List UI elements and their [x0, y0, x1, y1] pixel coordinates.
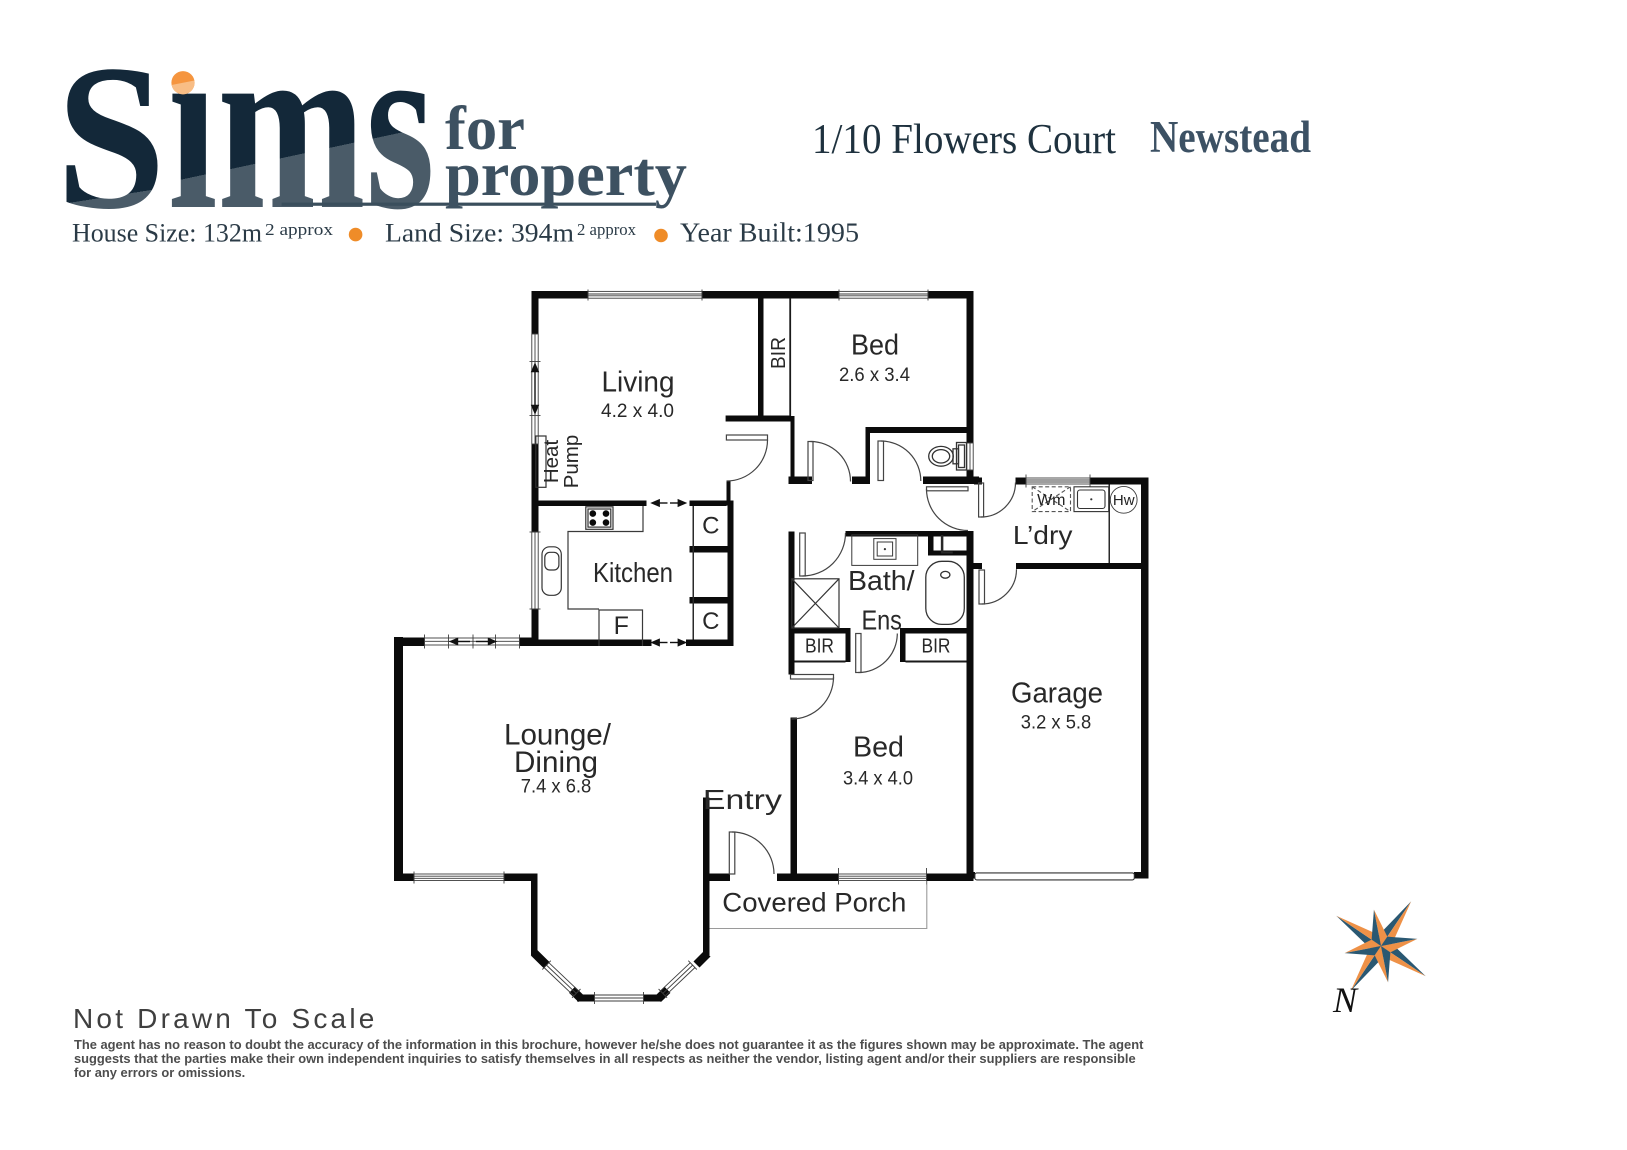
svg-text:7.4 x 6.8: 7.4 x 6.8 [521, 776, 592, 798]
svg-text:Ens: Ens [861, 605, 902, 636]
svg-text:suggests that the parties make: suggests that the parties make their own… [74, 1051, 1136, 1066]
svg-text:HeatPump: HeatPump [540, 435, 583, 489]
svg-text:House Size: 132m: House Size: 132m [72, 218, 262, 248]
svg-text:2 approx: 2 approx [577, 220, 636, 239]
svg-text:4.2 x 4.0: 4.2 x 4.0 [601, 400, 674, 422]
svg-text:Covered Porch: Covered Porch [722, 888, 906, 918]
svg-text:Kitchen: Kitchen [593, 557, 673, 588]
svg-text:BIR: BIR [922, 635, 951, 658]
svg-text:Bath/: Bath/ [848, 565, 915, 596]
svg-text:The agent has no reason to dou: The agent has no reason to doubt the acc… [74, 1037, 1144, 1052]
svg-text:Not Drawn To Scale: Not Drawn To Scale [73, 1003, 378, 1034]
svg-text:L’dry: L’dry [1013, 520, 1073, 550]
svg-text:property: property [445, 141, 687, 209]
svg-text:Entry: Entry [703, 784, 782, 815]
svg-text:2 approx: 2 approx [265, 220, 334, 239]
svg-text:N: N [1332, 980, 1359, 1020]
svg-text:Hw: Hw [1113, 492, 1135, 509]
svg-text:3.4 x 4.0: 3.4 x 4.0 [843, 768, 913, 790]
svg-text:Year Built:1995: Year Built:1995 [680, 218, 859, 248]
svg-text:Living: Living [602, 367, 675, 399]
svg-text:3.2 x 5.8: 3.2 x 5.8 [1021, 712, 1092, 734]
svg-text:BIR: BIR [805, 635, 834, 658]
svg-text:C: C [702, 608, 719, 635]
svg-text:1/10 Flowers Court: 1/10 Flowers Court [812, 117, 1116, 163]
svg-text:L: L [939, 530, 954, 560]
svg-text:Garage: Garage [1011, 678, 1103, 710]
svg-text:Dining: Dining [514, 746, 598, 779]
svg-text:Wm: Wm [1037, 492, 1065, 509]
svg-text:Land Size: 394m: Land Size: 394m [385, 218, 574, 248]
svg-text:C: C [702, 513, 719, 540]
svg-text:2.6 x 3.4: 2.6 x 3.4 [839, 364, 910, 386]
svg-text:Newstead: Newstead [1150, 112, 1311, 162]
svg-text:Bed: Bed [851, 330, 899, 362]
svg-text:F: F [614, 612, 629, 640]
svg-text:BIR: BIR [767, 337, 790, 369]
svg-text:Bed: Bed [853, 732, 904, 764]
svg-text:for any errors or omissions.: for any errors or omissions. [74, 1065, 245, 1080]
